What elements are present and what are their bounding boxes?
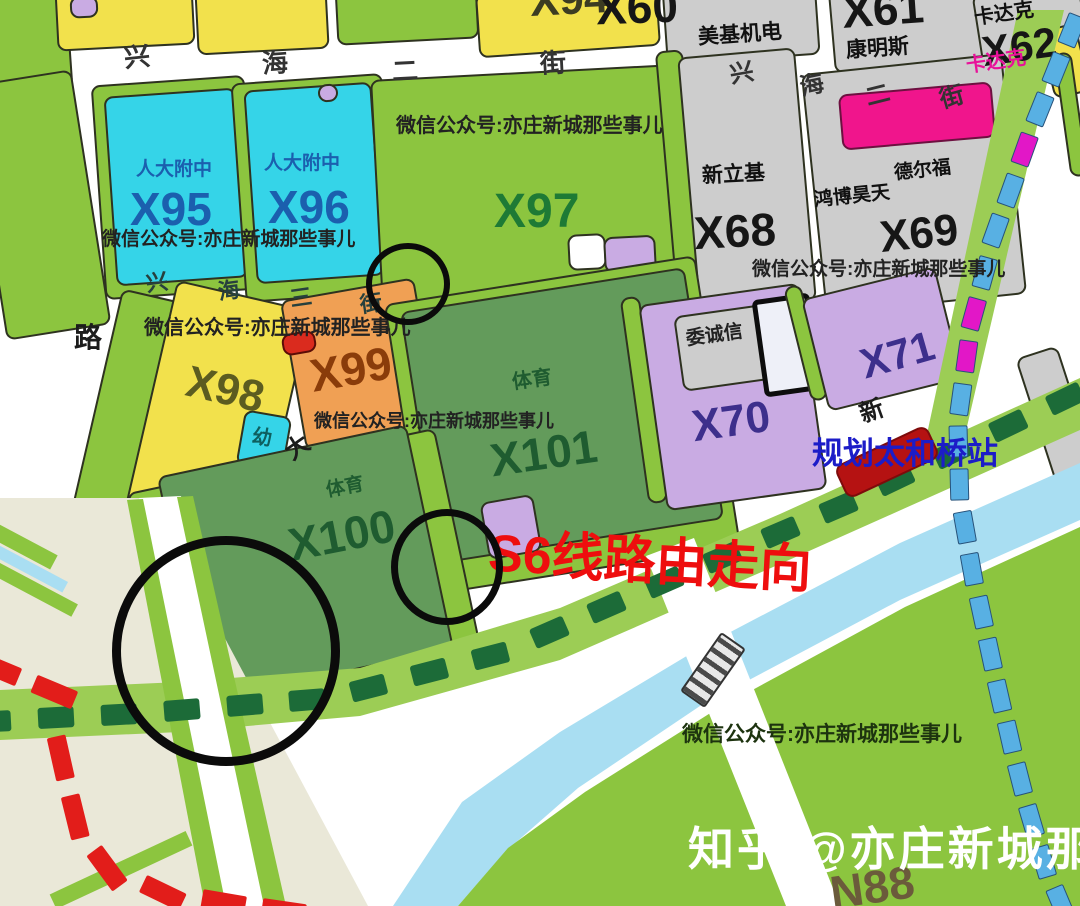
street-label-xinghai2-char: 街: [539, 49, 566, 76]
street-label-road: 路: [74, 324, 102, 352]
parcel-owner-x96: 人大附中: [264, 154, 340, 173]
parcel-purple-small-top: [69, 0, 98, 19]
parcel-label-x69: X69: [878, 208, 960, 260]
wechat-watermark: 微信公众号:亦庄新城那些事儿: [682, 724, 962, 745]
parcel-label-x95: X95: [130, 186, 212, 232]
parcel-label-x60: X60: [595, 0, 678, 31]
parcel-label-kindergarten: 幼: [250, 426, 273, 449]
parcel-use-x101: 体育: [511, 367, 553, 392]
wechat-watermark: 微信公众号:亦庄新城那些事儿: [144, 318, 411, 338]
street-label-xinghai2-char: 兴: [728, 60, 756, 88]
s6-route-dash: [0, 710, 12, 733]
street-label-xinghai3-char: 兴: [145, 271, 170, 296]
parcel-label-x96: X96: [268, 184, 350, 230]
parcel-label-x70: X70: [689, 395, 773, 449]
wechat-watermark: 微信公众号:亦庄新城那些事儿: [102, 230, 355, 249]
street-label-xinghai2-char: 海: [261, 49, 289, 77]
parcel-label-x68: X68: [693, 206, 777, 256]
parcel-white-small-x97: [567, 233, 607, 271]
wechat-watermark: 微信公众号:亦庄新城那些事儿: [396, 116, 663, 136]
wechat-watermark: 微信公众号:亦庄新城那些事儿: [752, 260, 1005, 279]
planning-map: 兴 海 三 街 路 大 新 X94: [0, 0, 1080, 906]
parcel-owner-x95: 人大附中: [136, 160, 212, 179]
parcel-owner-x68: 新立基: [701, 162, 765, 186]
station-annotation: 规划太和桥站: [812, 438, 998, 469]
annotation-circle-large: [112, 536, 340, 766]
zhihu-watermark: 知乎 @亦庄新城那些事儿: [688, 826, 1080, 872]
parcel-yellow-top-b: [194, 0, 329, 55]
parcel-owner-x61: 康明斯: [845, 36, 909, 61]
parcel-green-top-mid: [335, 0, 480, 46]
s6-route-dash: [37, 706, 74, 729]
parcel-label-x97: X97: [494, 188, 579, 236]
annotation-circle-small-top: [366, 243, 450, 325]
parcel-label-x61: X61: [840, 0, 925, 35]
street-label-xinghai3-char: 三: [289, 286, 314, 311]
parcel-label-x99: X99: [307, 339, 396, 399]
parcel-owner-x60: 美基机电: [697, 21, 782, 48]
annotation-circle-small-mid: [391, 509, 503, 625]
street-label-xinghai2-char: 二: [391, 57, 418, 84]
street-label-xinghai2-char: 兴: [123, 43, 152, 72]
street-label-xinghai3-char: 海: [217, 279, 242, 304]
wechat-watermark: 微信公众号:亦庄新城那些事儿: [314, 412, 554, 430]
street-label-xinghai2-char: 海: [798, 72, 826, 100]
street-label-xin: 新: [857, 397, 888, 428]
metro-line-dash: [950, 468, 970, 500]
